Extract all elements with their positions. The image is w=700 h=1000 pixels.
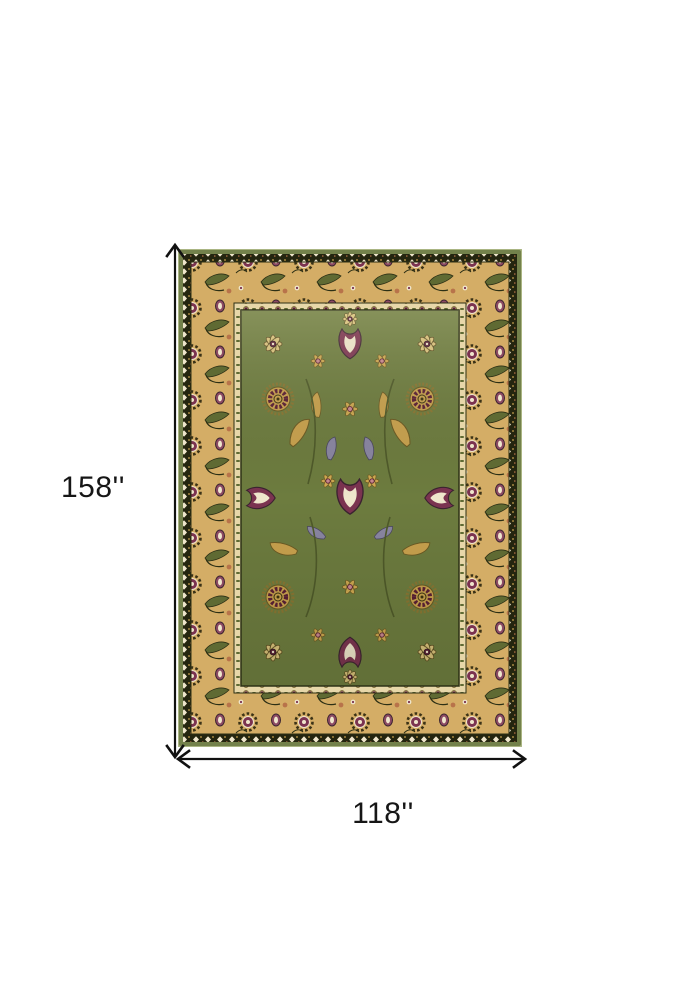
rug-image	[178, 249, 522, 747]
height-dimension-label: 158''	[51, 472, 135, 504]
product-dimension-figure: 158'' 118''	[0, 0, 700, 1000]
height-dimension-arrow	[160, 238, 192, 766]
width-dimension-label: 118''	[340, 798, 426, 830]
rug-field-shading	[241, 310, 459, 686]
width-dimension-arrow	[170, 745, 534, 775]
rug-illustration	[178, 249, 522, 747]
